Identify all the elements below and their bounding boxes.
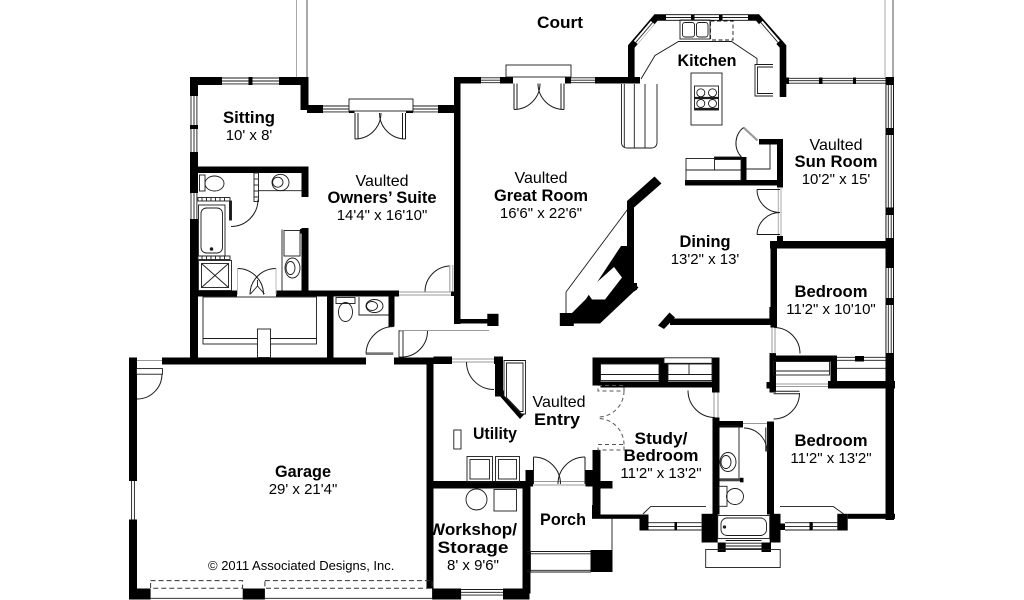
svg-text:Storage: Storage xyxy=(438,538,509,557)
svg-text:Owners’ Suite: Owners’ Suite xyxy=(328,188,437,207)
svg-text:Garage: Garage xyxy=(275,462,331,481)
svg-text:Bedroom: Bedroom xyxy=(624,446,699,465)
svg-text:11'2" x 13'2": 11'2" x 13'2" xyxy=(620,465,701,482)
svg-text:14'4" x 16'10": 14'4" x 16'10" xyxy=(337,207,428,224)
svg-text:29' x 21'4": 29' x 21'4" xyxy=(269,481,338,498)
svg-text:13'2" x 13': 13'2" x 13' xyxy=(671,251,740,268)
svg-text:Workshop/: Workshop/ xyxy=(429,520,517,539)
svg-text:Kitchen: Kitchen xyxy=(678,51,737,70)
svg-text:Bedroom: Bedroom xyxy=(795,431,868,450)
svg-text:Entry: Entry xyxy=(534,410,581,429)
svg-text:10'2" x 15': 10'2" x 15' xyxy=(802,171,871,188)
svg-text:Vaulted: Vaulted xyxy=(532,394,585,411)
svg-text:Vaulted: Vaulted xyxy=(514,170,567,187)
svg-text:Great Room: Great Room xyxy=(494,186,588,205)
svg-text:© 2011 Associated Designs, Inc: © 2011 Associated Designs, Inc. xyxy=(208,558,394,573)
svg-text:10' x 8': 10' x 8' xyxy=(226,127,273,144)
svg-text:16'6" x 22'6": 16'6" x 22'6" xyxy=(500,205,582,222)
svg-text:Porch: Porch xyxy=(540,510,586,529)
svg-text:11'2" x 13'2": 11'2" x 13'2" xyxy=(790,450,871,467)
svg-text:8' x 9'6": 8' x 9'6" xyxy=(447,557,499,574)
svg-text:Sitting: Sitting xyxy=(223,108,275,127)
svg-text:Sun Room: Sun Room xyxy=(795,152,878,171)
svg-text:Court: Court xyxy=(537,13,583,32)
svg-text:Bedroom: Bedroom xyxy=(795,282,868,301)
svg-text:11'2" x 10'10": 11'2" x 10'10" xyxy=(786,301,876,318)
svg-text:Utility: Utility xyxy=(473,424,517,443)
svg-text:Dining: Dining xyxy=(680,232,731,251)
